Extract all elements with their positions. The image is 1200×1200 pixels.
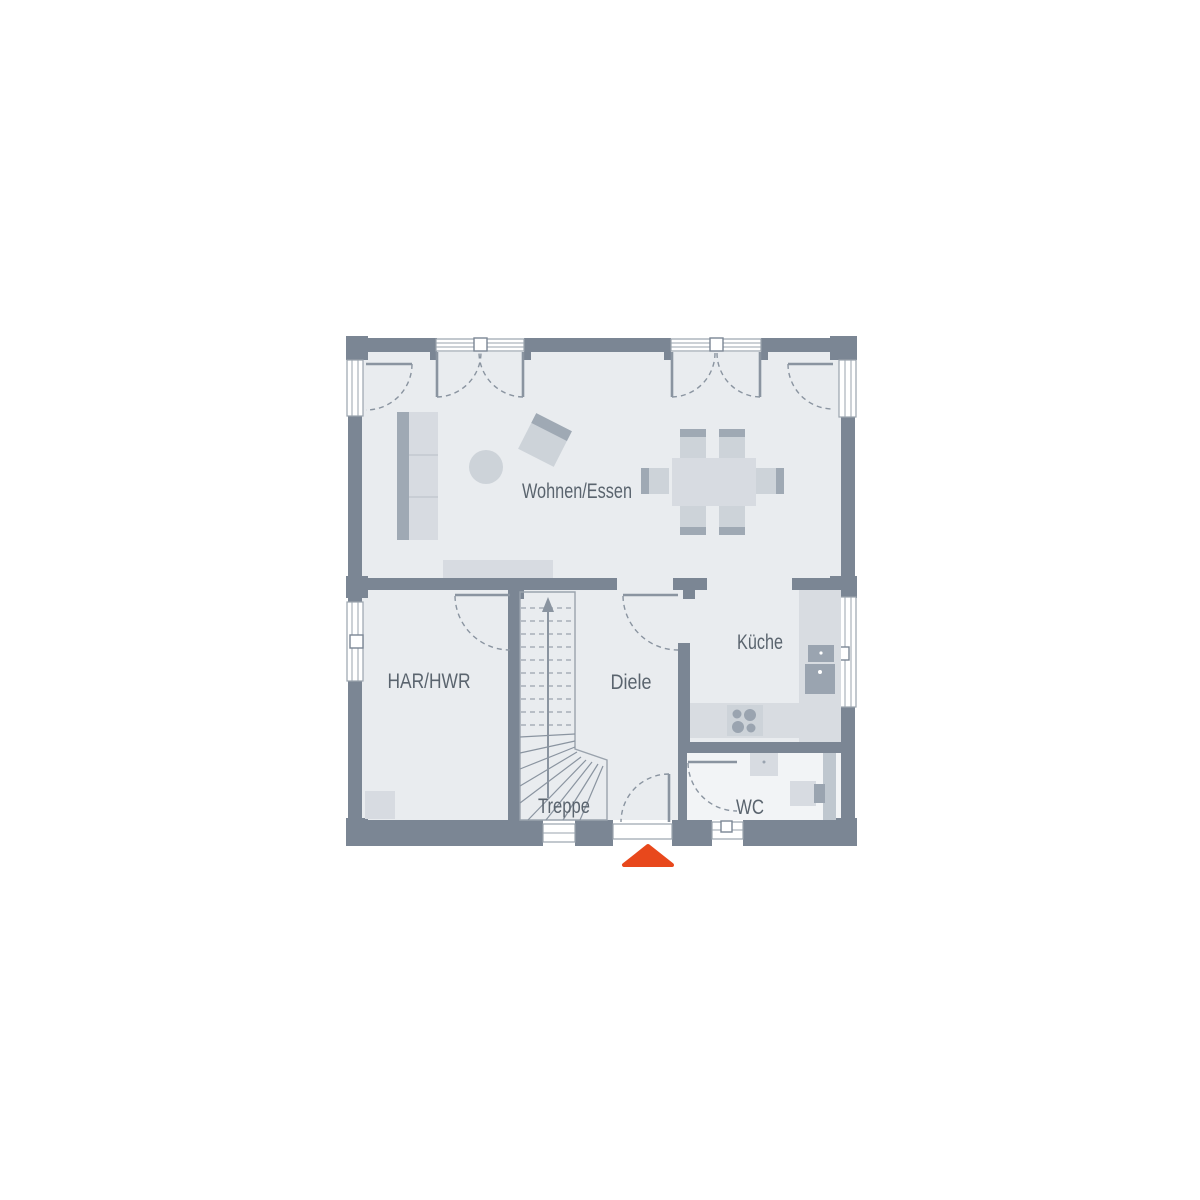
wall-bottom-3 (672, 820, 712, 846)
door-handle (474, 338, 487, 351)
wc-toilet (790, 781, 816, 806)
window-handle (721, 821, 732, 832)
kitchen-oven-lower (805, 664, 835, 694)
coffee-table (469, 450, 503, 484)
wall-wc-top (678, 742, 855, 753)
entrance-threshold (613, 824, 672, 839)
room-label-diele: Diele (611, 671, 652, 694)
wall-top-2 (524, 338, 671, 352)
wall-mid-1 (362, 578, 617, 590)
wc-cistern (814, 784, 825, 803)
dining-chair (756, 468, 784, 494)
wall-left-1 (348, 416, 362, 578)
dining-chair (719, 506, 745, 535)
floor-plan-canvas: Wohnen/Essen HAR/HWR Diele Küche Treppe … (0, 0, 1200, 1200)
wall-right-2 (841, 707, 855, 820)
window-handle (350, 635, 363, 648)
floor-plan-page: Wohnen/Essen HAR/HWR Diele Küche Treppe … (0, 0, 1200, 1200)
wall-bottom-2 (575, 820, 613, 846)
wall-wc-left (678, 753, 687, 820)
dining-table (672, 458, 756, 506)
door-handle (710, 338, 723, 351)
dining-chair (719, 429, 745, 458)
room-label-kueche: Küche (737, 631, 783, 654)
wall-bottom-1 (348, 820, 543, 846)
room-label-treppe: Treppe (538, 795, 590, 818)
sideboard (443, 560, 553, 578)
wall-stair-har (508, 590, 520, 820)
sofa-seat (409, 412, 438, 540)
sofa (397, 412, 438, 540)
window-left-top (347, 360, 363, 416)
corner-top-right (830, 336, 857, 360)
dining-chair (680, 429, 706, 458)
wall-left-3 (348, 680, 362, 820)
wall-bottom-4 (743, 820, 855, 846)
wall-mid-2-stub (683, 590, 695, 599)
room-label-wc: WC (736, 796, 764, 819)
jamb (524, 338, 531, 360)
wall-diele-kueche (678, 643, 690, 742)
entrance-marker (624, 846, 672, 865)
window-right-top (839, 360, 856, 417)
corner-top-left (346, 336, 368, 360)
sofa-back (397, 412, 409, 540)
wc-sink (750, 753, 778, 776)
har-appliance (365, 791, 395, 819)
wall-mid-2 (673, 578, 707, 590)
jamb (761, 338, 768, 360)
dining-chair (641, 468, 669, 494)
cooktop (727, 705, 763, 736)
jamb (664, 338, 671, 360)
room-label-har-hwr: HAR/HWR (388, 670, 471, 693)
wall-mid-3 (792, 578, 841, 590)
room-label-wohnen-essen: Wohnen/Essen (522, 480, 632, 503)
wall-right-1 (841, 417, 855, 578)
dining-chair (680, 506, 706, 535)
